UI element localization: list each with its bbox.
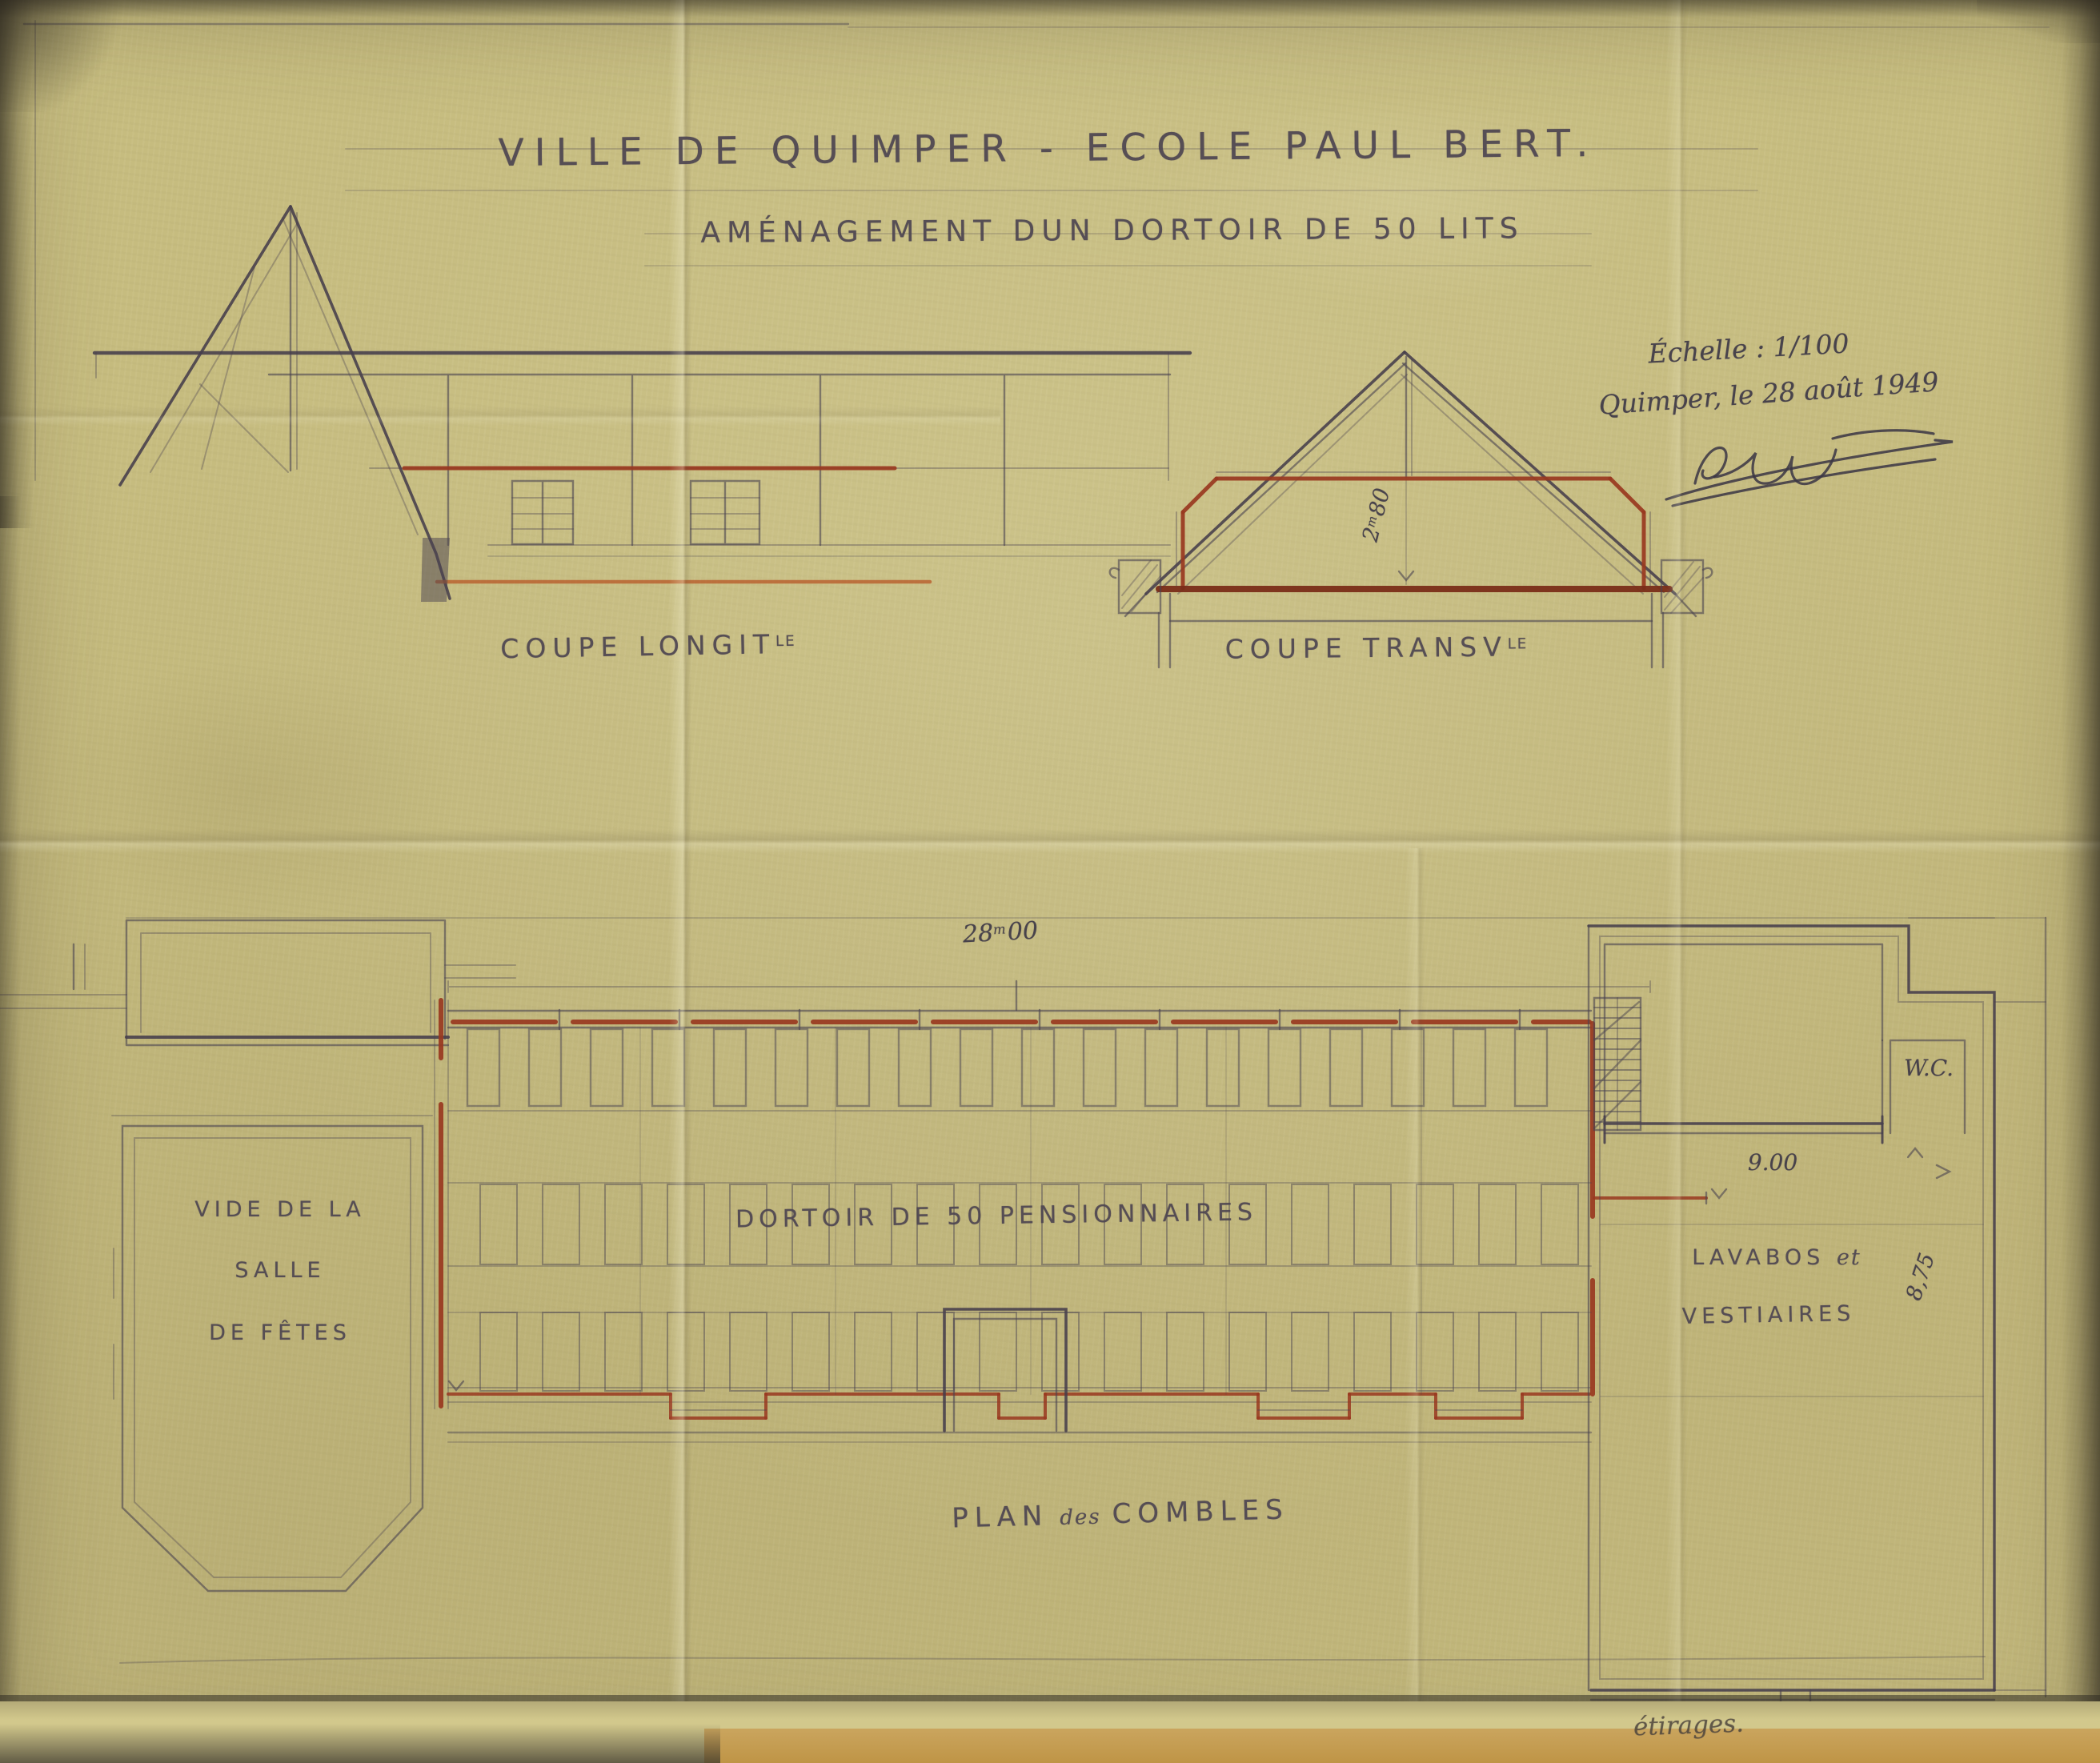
- transverse-label-text: COUPE TRANSV: [1225, 631, 1508, 665]
- hall-void-label-line3: DE FÊTES: [144, 1320, 416, 1345]
- length-whole: 28: [962, 919, 994, 948]
- signature: [1666, 431, 1953, 506]
- transverse-section-label: COUPE TRANSVLE: [1176, 631, 1577, 665]
- longitudinal-label-superscript: LE: [775, 633, 796, 650]
- washroom-main-text: LAVABOS: [1692, 1245, 1825, 1270]
- transverse-label-superscript: LE: [1508, 635, 1529, 652]
- longitudinal-label-text: COUPE LONGIT: [500, 628, 775, 664]
- plan-label-small: des: [1060, 1505, 1101, 1530]
- drawing-subtitle: AMÉNAGEMENT DUN DORTOIR DE 50 LITS: [632, 212, 1593, 250]
- plan-upper-left-wing: [0, 920, 515, 1045]
- longitudinal-section-label: COUPE LONGITLE: [464, 627, 833, 665]
- drawing-layer: [0, 0, 2100, 1763]
- washroom-label-line2: VESTIAIRES: [1621, 1300, 1917, 1330]
- hall-void-label-line1: VIDE DE LA: [156, 1197, 404, 1222]
- washroom-label-line1: LAVABOS et: [1629, 1245, 1925, 1270]
- hall-void-label-line2: SALLE: [156, 1258, 404, 1283]
- hall-void-outline: [112, 1116, 432, 1591]
- plan-label-main2: COMBLES: [1112, 1493, 1289, 1530]
- wc-label: W.C.: [1881, 1055, 1977, 1081]
- length-frac: 00: [1007, 917, 1039, 947]
- annex-width-dimension: 9.00: [1701, 1149, 1845, 1176]
- washroom-et-text: et: [1837, 1245, 1862, 1270]
- length-unit: m: [992, 921, 1008, 937]
- blueprint-sheet: VILLE DE QUIMPER - ECOLE PAUL BERT. AMÉN…: [0, 0, 2100, 1763]
- plan-label-main: PLAN: [952, 1500, 1049, 1534]
